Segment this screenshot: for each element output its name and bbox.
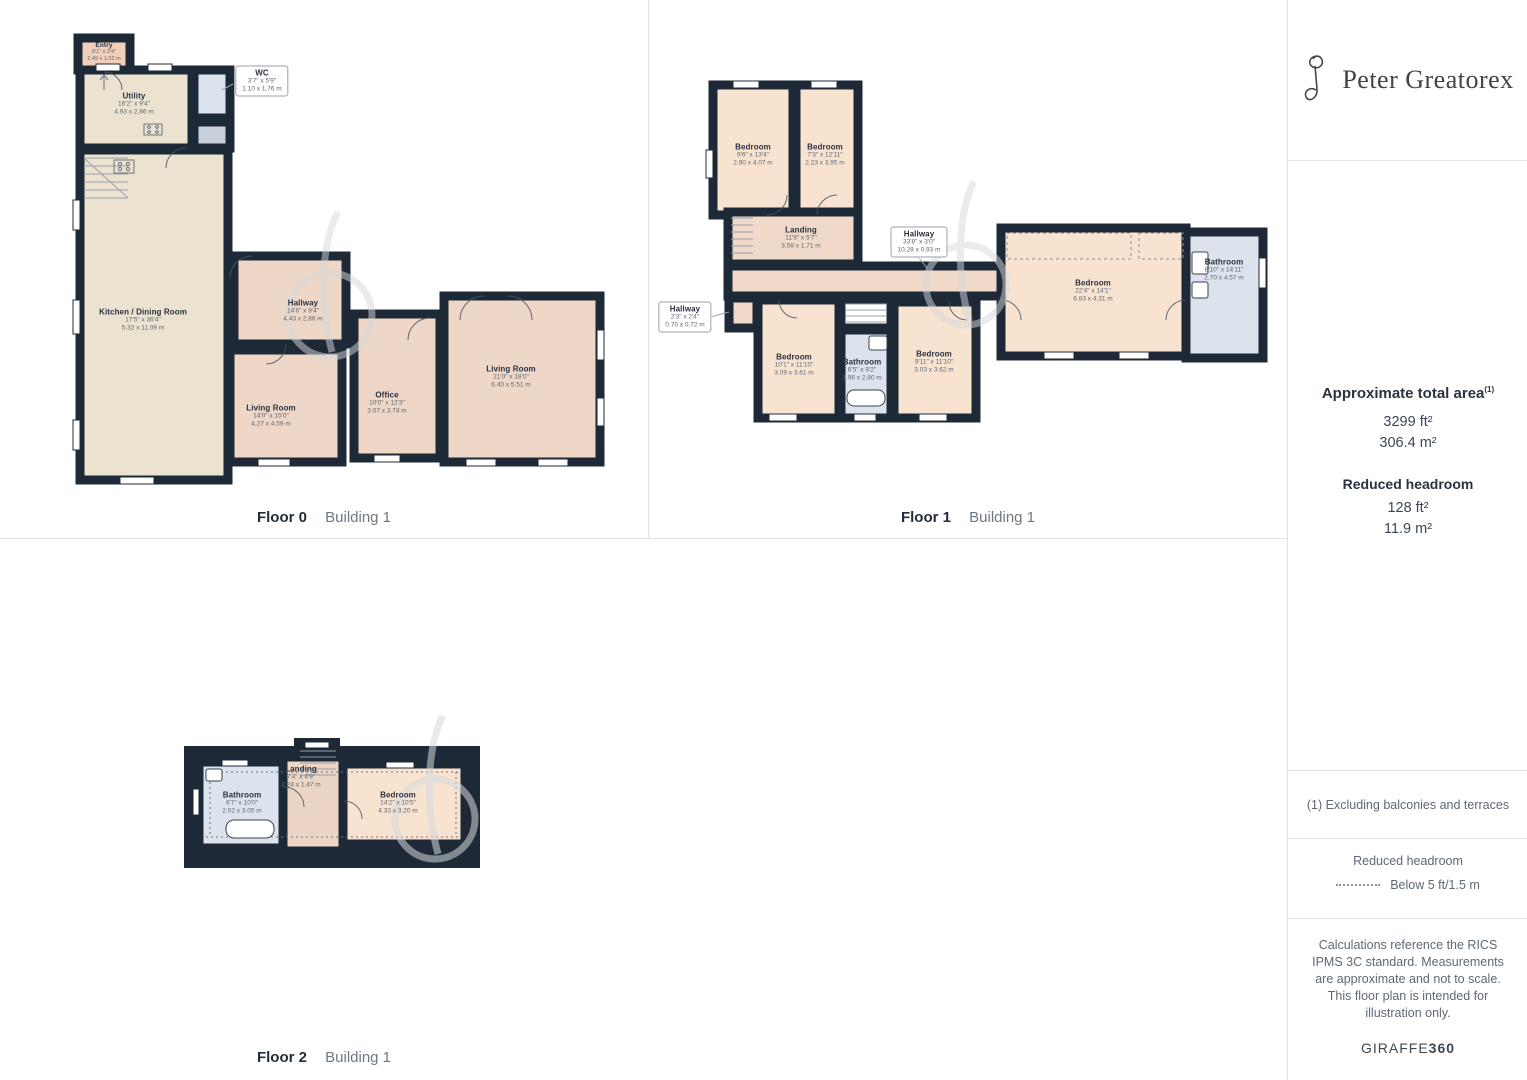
legend-row: Below 5 ft/1.5 m <box>1288 878 1527 892</box>
disclaimer-section: Calculations reference the RICS IPMS 3C … <box>1288 918 1527 1080</box>
floor-label: Floor 2 <box>257 1049 307 1066</box>
legend-title: Reduced headroom <box>1288 854 1527 868</box>
building-label: Building 1 <box>325 1049 391 1066</box>
total-area-ft: 3299 ft² <box>1288 412 1527 433</box>
footnote: (1) Excluding balconies and terraces <box>1288 770 1527 838</box>
legend-item-label: Below 5 ft/1.5 m <box>1390 878 1480 892</box>
reduced-headroom-m: 11.9 m² <box>1288 519 1527 540</box>
generator-logo: GIRAFFE360 <box>1312 1040 1504 1057</box>
floor-label: Floor 1 <box>901 509 951 526</box>
total-area-m: 306.4 m² <box>1288 433 1527 454</box>
brand-monogram-icon <box>1302 53 1332 107</box>
footnote-marker: (1) <box>1484 385 1494 394</box>
disclaimer-text: Calculations reference the RICS IPMS 3C … <box>1312 937 1504 1022</box>
legend: Reduced headroom Below 5 ft/1.5 m <box>1288 838 1527 918</box>
floor-label: Floor 0 <box>257 509 307 526</box>
floor-1-caption: Floor 1 Building 1 <box>649 509 1287 526</box>
building-label: Building 1 <box>969 509 1035 526</box>
total-area-title: Approximate total area(1) <box>1288 385 1527 402</box>
reduced-headroom-ft: 128 ft² <box>1288 498 1527 519</box>
area-summary: Approximate total area(1) 3299 ft² 306.4… <box>1288 160 1527 770</box>
floor-1-panel: Bedroom 9'6" x 13'4" 2.90 x 4.07 m Bedro… <box>649 0 1287 539</box>
dotted-line-icon <box>1336 884 1380 886</box>
floor-0-plan <box>0 0 648 538</box>
floor-2-caption: Floor 2 Building 1 <box>0 1049 648 1066</box>
reduced-headroom-title: Reduced headroom <box>1288 476 1527 492</box>
floor-0-panel: Entry 8'1" x 3'4" 2.49 x 1.02 m Utility … <box>0 0 649 539</box>
floor-2-plan <box>0 539 1287 1080</box>
floor-0-caption: Floor 0 Building 1 <box>0 509 648 526</box>
brand-name: Peter Greatorex <box>1342 65 1513 95</box>
building-label: Building 1 <box>325 509 391 526</box>
floorplan-page: Entry 8'1" x 3'4" 2.49 x 1.02 m Utility … <box>0 0 1527 1080</box>
info-sidebar: Peter Greatorex Approximate total area(1… <box>1287 0 1527 1080</box>
floor-2-panel: Bathroom 6'7" x 10'0" 2.02 x 3.05 m Land… <box>0 539 1287 1080</box>
brand-header: Peter Greatorex <box>1288 0 1527 160</box>
floor-1-plan <box>649 0 1287 538</box>
